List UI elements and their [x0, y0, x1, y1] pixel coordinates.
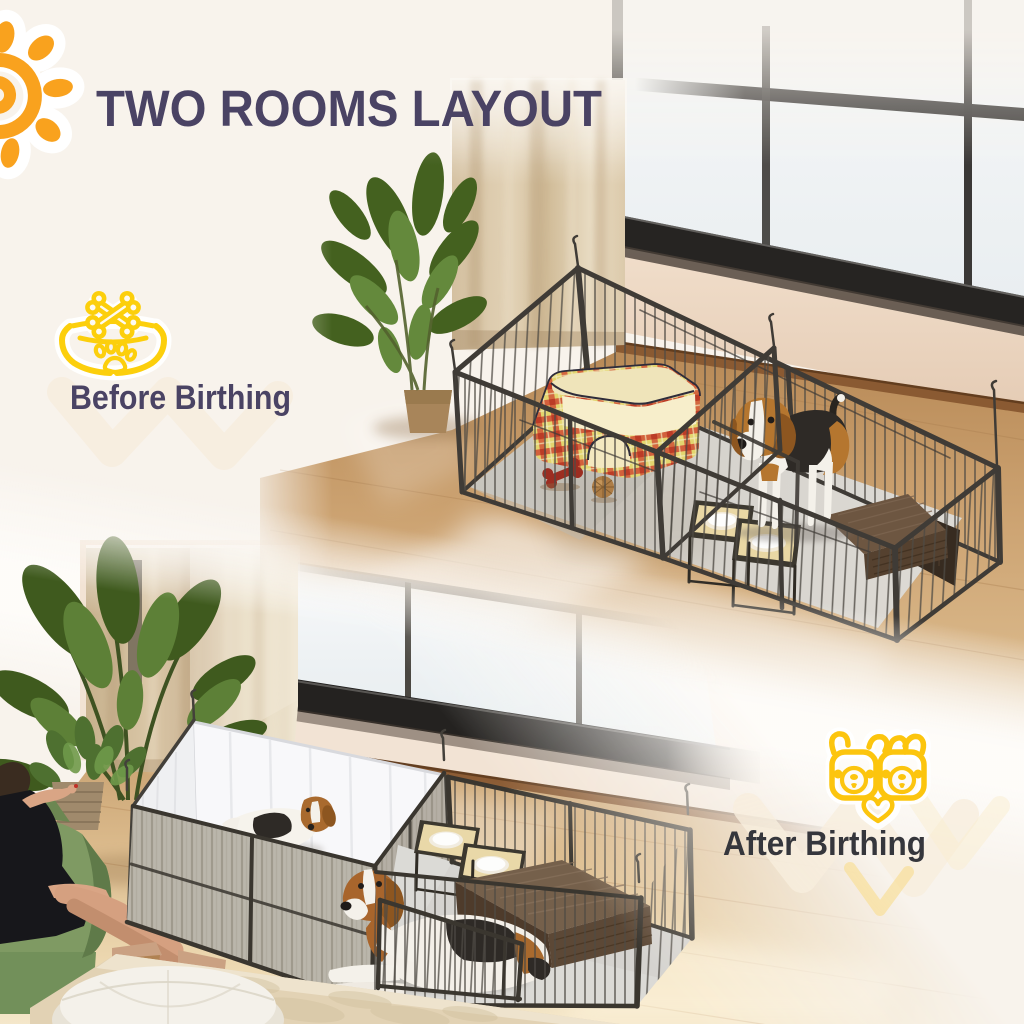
svg-text:After Birthing: After Birthing: [723, 825, 926, 863]
svg-text:Before Birthing: Before Birthing: [70, 379, 291, 417]
svg-text:TWO ROOMS LAYOUT: TWO ROOMS LAYOUT: [96, 80, 602, 137]
